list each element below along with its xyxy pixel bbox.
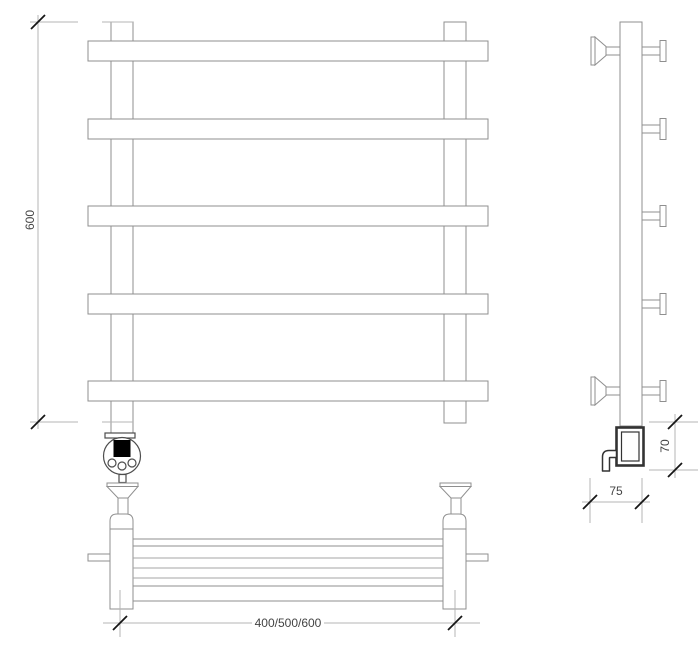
power-cable	[603, 451, 617, 472]
bar-end-1	[642, 41, 666, 62]
drawing-canvas: 600 400/500/600 70 75	[0, 0, 700, 653]
side-view	[591, 22, 666, 471]
bracket-flange	[440, 483, 471, 487]
plan-left-stub	[88, 554, 110, 561]
heater-core	[622, 432, 640, 461]
bar-end-stem	[642, 300, 660, 308]
height-dimension-label: 600	[23, 210, 37, 230]
plan-left-post	[110, 529, 133, 609]
bar-end-2	[642, 119, 666, 140]
bar-end-stem	[642, 387, 660, 395]
controller-display	[114, 440, 131, 457]
bracket-cone	[595, 37, 606, 65]
bracket-flange	[591, 37, 595, 65]
bracket-stem	[606, 387, 620, 395]
post-cap	[110, 514, 133, 529]
bar-end-5	[642, 381, 666, 402]
bracket-cone	[440, 487, 471, 499]
bracket-stem	[606, 47, 620, 55]
front-left-post	[111, 22, 133, 433]
wall-bracket-bottom	[591, 377, 620, 405]
heater-height-dimension-label: 70	[658, 439, 672, 453]
bar-end-cap	[660, 119, 666, 140]
controller-probe	[119, 475, 126, 483]
bar-end-stem	[642, 125, 660, 133]
plan-rear-bar	[133, 586, 443, 601]
towel-bar-3	[88, 206, 488, 226]
bar-end-4	[642, 294, 666, 315]
side-post	[620, 22, 642, 426]
controller-button-center	[118, 462, 126, 470]
plan-right-stub	[466, 554, 488, 561]
bracket-stem	[451, 498, 461, 515]
bracket-stem	[118, 498, 128, 515]
towel-bar-1	[88, 41, 488, 61]
technical-drawing: 600 400/500/600 70 75	[0, 0, 700, 653]
thermostat-controller	[104, 433, 141, 483]
plan-right-bracket	[440, 483, 471, 529]
towel-bar-2	[88, 119, 488, 139]
width-dimension-label: 400/500/600	[255, 616, 322, 630]
wall-bracket-top	[591, 37, 620, 65]
dimension-heater-height: 70	[649, 414, 698, 478]
bar-end-cap	[660, 294, 666, 315]
front-view	[88, 22, 488, 483]
towel-bar-5	[88, 381, 488, 401]
bar-end-stem	[642, 212, 660, 220]
bar-end-3	[642, 206, 666, 227]
towel-bar-4	[88, 294, 488, 314]
bracket-cone	[107, 487, 138, 499]
bar-end-cap	[660, 206, 666, 227]
controller-button-left	[108, 459, 116, 467]
heating-element	[603, 428, 644, 472]
post-cap	[443, 514, 466, 529]
bracket-flange	[107, 483, 138, 487]
plan-left-bracket	[107, 483, 138, 529]
bracket-cone	[595, 377, 606, 405]
bar-end-stem	[642, 47, 660, 55]
bracket-flange	[591, 377, 595, 405]
bar-end-cap	[660, 41, 666, 62]
controller-button-right	[128, 459, 136, 467]
dimension-bracket-depth: 75	[582, 478, 650, 523]
plan-view	[88, 483, 488, 609]
bar-end-cap	[660, 381, 666, 402]
plan-front-bar	[133, 539, 443, 546]
bracket-depth-dimension-label: 75	[609, 484, 623, 498]
